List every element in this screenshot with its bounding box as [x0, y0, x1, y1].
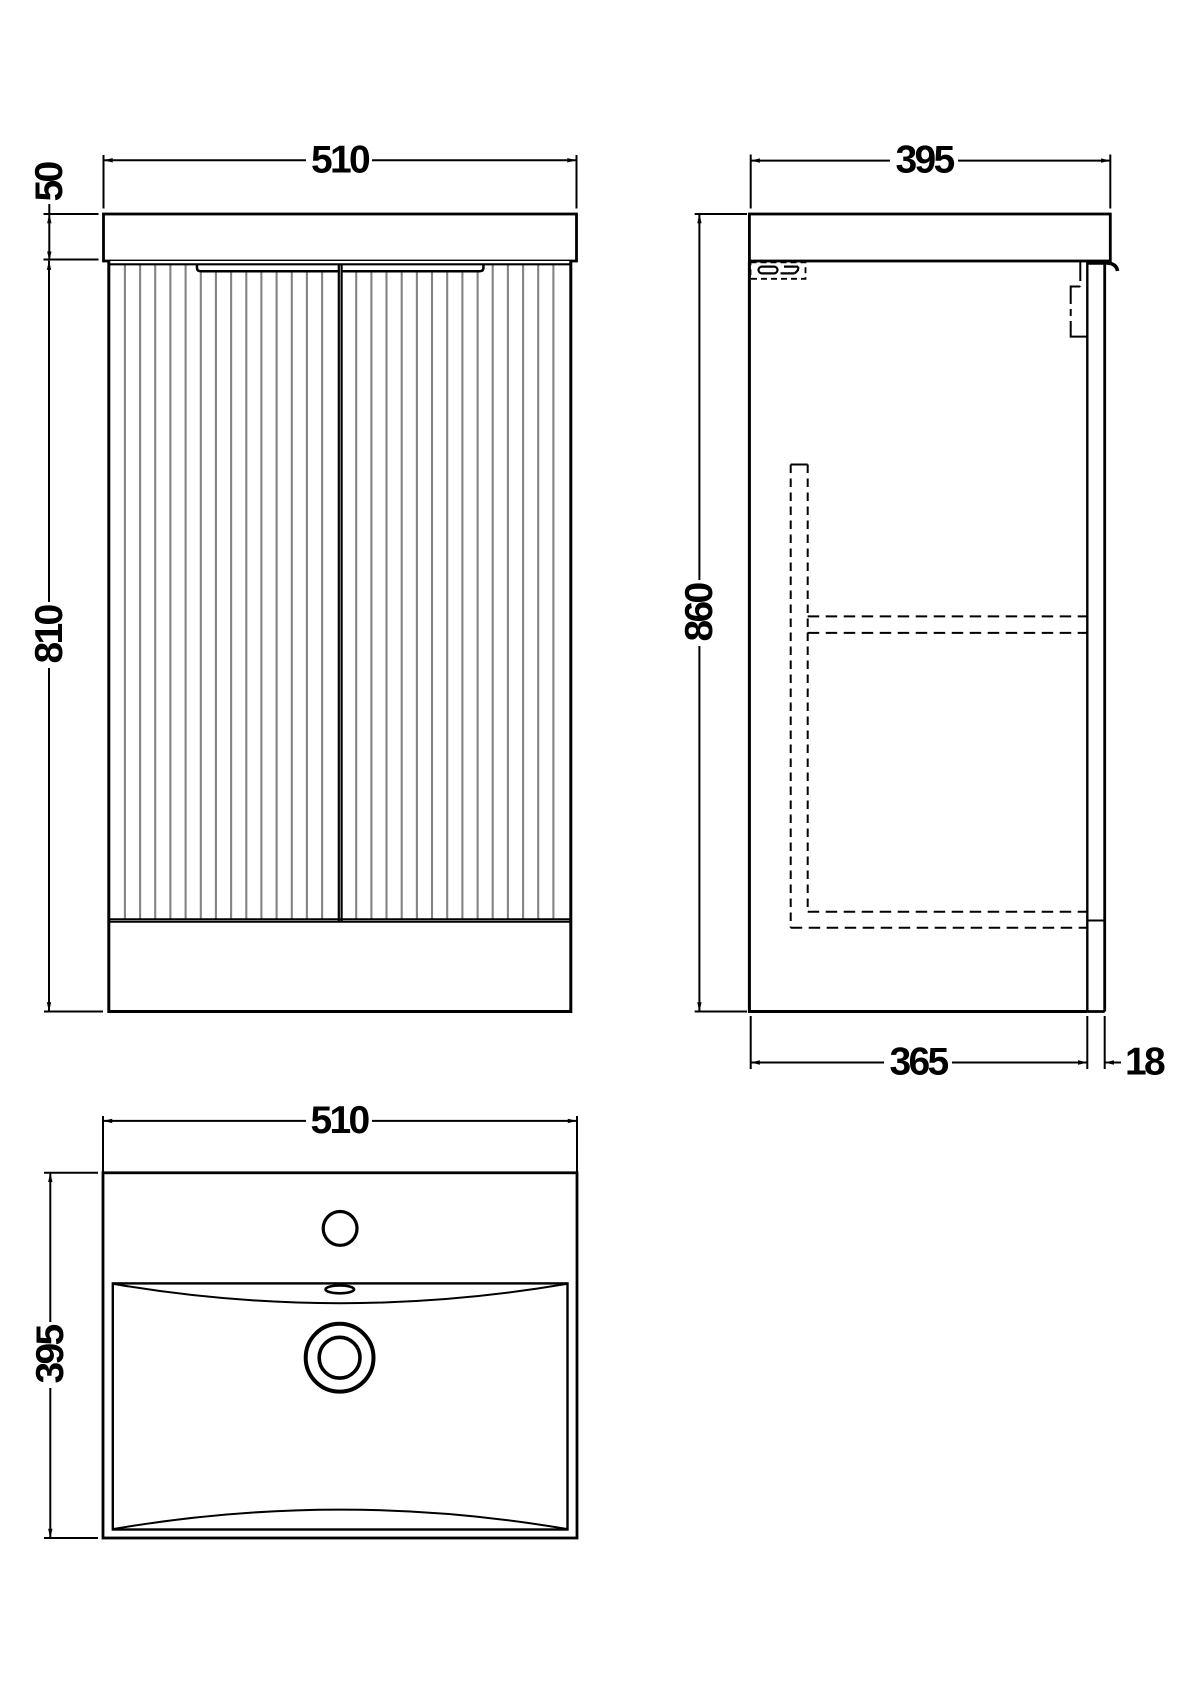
svg-text:50: 50	[28, 162, 71, 202]
svg-text:18: 18	[1125, 1041, 1165, 1084]
svg-text:510: 510	[311, 139, 370, 182]
svg-text:860: 860	[678, 583, 721, 642]
svg-text:365: 365	[890, 1041, 949, 1084]
svg-text:510: 510	[311, 1099, 370, 1142]
svg-text:810: 810	[28, 605, 71, 664]
svg-text:395: 395	[29, 1325, 72, 1384]
svg-text:395: 395	[896, 139, 955, 182]
